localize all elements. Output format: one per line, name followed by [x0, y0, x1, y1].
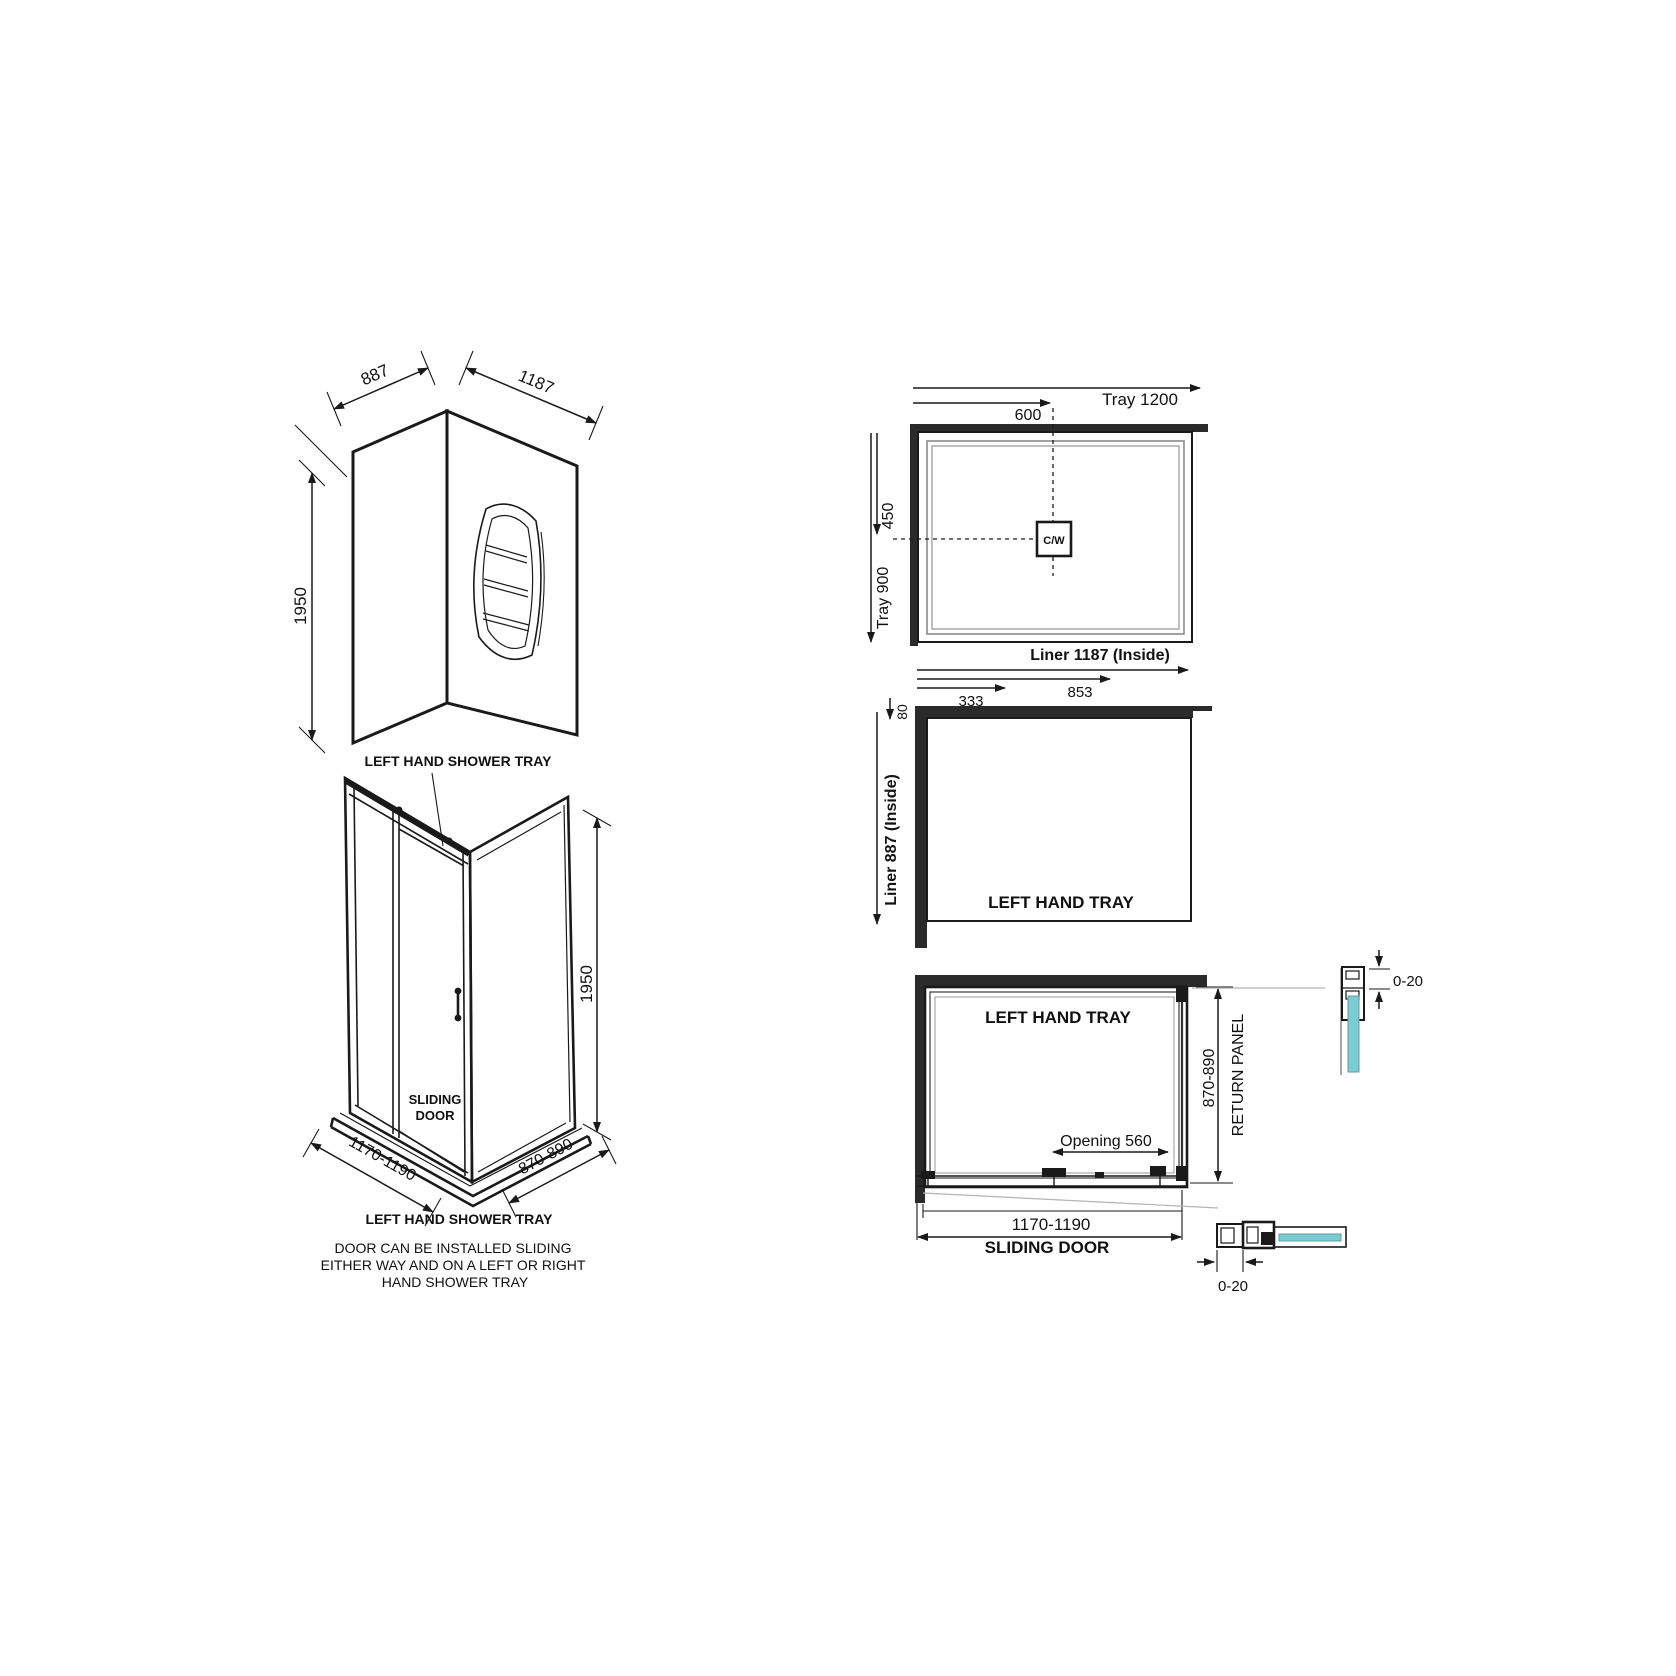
dim-80-label: 80 [894, 704, 910, 720]
door-plan-diagram: LEFT HAND TRAY Opening 560 870-890 RETUR… [915, 975, 1325, 1257]
waste-label: C/W [1043, 535, 1065, 547]
opening-label: Opening 560 [1060, 1133, 1152, 1150]
return-panel-label: RETURN PANEL [1230, 1014, 1247, 1136]
corner-walls-caption: LEFT HAND SHOWER TRAY [365, 753, 553, 769]
install-note-line1: DOOR CAN BE INSTALLED SLIDING [334, 1240, 571, 1256]
install-note-line2: EITHER WAY AND ON A LEFT OR RIGHT [321, 1257, 586, 1273]
frame-gasket-block [1261, 1232, 1274, 1245]
door-roller-guide [921, 1171, 935, 1179]
frame-slot [1247, 1227, 1258, 1243]
dim-1187-label: 1187 [516, 366, 557, 398]
enclosure-3d-diagram: SLIDING DOOR 1950 1170-1190 870-890 LEFT… [303, 778, 616, 1290]
return-panel-top-bracket [1176, 988, 1187, 1002]
caddy-outline [474, 504, 541, 659]
caddy-shelves [483, 545, 529, 631]
wall-profile-detail-vertical: 0-20 [1341, 950, 1423, 1075]
dim-1950-right-label: 1950 [577, 965, 596, 1003]
door-roller-guide [1095, 1172, 1104, 1178]
profile-slot [1221, 1228, 1234, 1243]
tray-width-label: Tray 1200 [1102, 390, 1178, 409]
waste-y-label: 450 [880, 503, 897, 530]
liner-outline [927, 718, 1191, 921]
dim-1950-label: 1950 [291, 587, 310, 625]
install-note-line3: HAND SHOWER TRAY [382, 1274, 529, 1290]
sliding-door-label: SLIDING DOOR [985, 1238, 1110, 1257]
corner-shelf-caddy [474, 504, 544, 659]
door-roller-guide [1150, 1166, 1166, 1176]
liner-depth-label: Liner 887 (Inside) [883, 774, 900, 906]
door-roller-guide [1042, 1168, 1066, 1177]
left-hand-tray-label: LEFT HAND TRAY [985, 1008, 1131, 1027]
corner-walls-diagram: 887 1187 1950 LEFT HAND SHOWER TRAY [291, 351, 603, 846]
liner-plan-diagram: 80 Liner 887 (Inside) LEFT HAND TRAY [877, 698, 1212, 948]
adjust-label: 0-20 [1393, 973, 1423, 990]
liner-width-label: Liner 1187 (Inside) [1030, 647, 1170, 664]
profile-slot [1346, 971, 1359, 979]
door-roller [396, 807, 403, 814]
sliding-door-label-line2: DOOR [416, 1108, 456, 1123]
left-wall-panel [353, 411, 447, 743]
side-panel-inner-frame [477, 805, 570, 1172]
wall-profile-detail-horizontal: 0-20 [1197, 1222, 1346, 1295]
return-panel-bottom-bracket [1176, 1166, 1187, 1181]
caddy-inner-frame [483, 516, 533, 649]
glass-panel [1348, 996, 1359, 1072]
dim-853-label: 853 [1067, 684, 1092, 701]
left-hand-tray-label: LEFT HAND TRAY [988, 893, 1134, 912]
waste-x-label: 600 [1015, 407, 1042, 424]
enclosure-caption: LEFT HAND SHOWER TRAY [366, 1211, 554, 1227]
leader-to-bottom-detail [923, 1193, 1218, 1208]
shower-enclosure-technical-diagram: 887 1187 1950 LEFT HAND SHOWER TRAY SLID… [0, 0, 1676, 1676]
sliding-door-label-line1: SLIDING [409, 1092, 462, 1107]
adjust-label: 0-20 [1218, 1278, 1248, 1295]
right-wall-panel [447, 411, 577, 735]
glass-panel [1279, 1234, 1341, 1241]
adjust-extension-lines [1217, 1250, 1243, 1272]
dim-887-label: 887 [358, 361, 392, 390]
adjust-ticks [1369, 969, 1390, 989]
tray-depth-label: Tray 900 [875, 567, 892, 630]
depth-label: 870-890 [1201, 1049, 1218, 1108]
door-roller [446, 838, 453, 845]
width-label: 1170-1190 [1012, 1215, 1091, 1234]
tray-plan-diagram: C/W Tray 1200 600 450 Tray 900 Liner 118… [871, 388, 1208, 710]
door-handle [455, 988, 462, 1022]
